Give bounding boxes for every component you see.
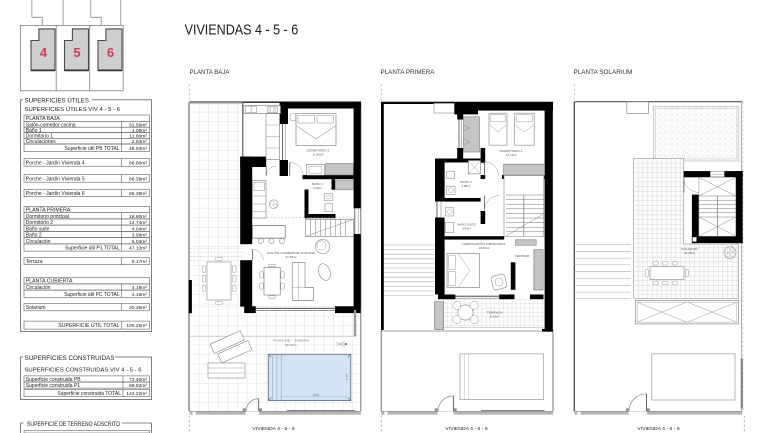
svg-text:14.74m²: 14.74m² bbox=[505, 153, 516, 157]
svg-text:SUPERFICIES CONSTRUIDAS: SUPERFICIES CONSTRUIDAS bbox=[25, 355, 115, 362]
svg-text:8.50: 8.50 bbox=[313, 393, 319, 397]
svg-text:VESTIDOR: VESTIDOR bbox=[515, 254, 529, 258]
svg-text:SUPERFICIE ÚTIL TOTAL: SUPERFICIE ÚTIL TOTAL bbox=[58, 322, 119, 329]
svg-text:11.80m²: 11.80m² bbox=[313, 153, 324, 157]
svg-text:PLANTA PRIMERA: PLANTA PRIMERA bbox=[381, 69, 436, 76]
svg-text:8.17m²: 8.17m² bbox=[490, 315, 499, 319]
svg-text:4.09m²: 4.09m² bbox=[313, 186, 322, 190]
svg-text:PLANTA BAJA: PLANTA BAJA bbox=[190, 69, 231, 76]
svg-text:Superficie útil PB TOTAL: Superficie útil PB TOTAL bbox=[64, 146, 119, 152]
svg-text:47.13m²: 47.13m² bbox=[129, 246, 147, 252]
svg-text:Porche - Jardín Vivienda 5: Porche - Jardín Vivienda 5 bbox=[26, 176, 85, 182]
svg-text:5: 5 bbox=[73, 45, 80, 60]
svg-text:18.60m²: 18.60m² bbox=[478, 246, 489, 250]
svg-text:86.39m²: 86.39m² bbox=[129, 176, 147, 182]
svg-text:69.82m²: 69.82m² bbox=[129, 383, 147, 389]
svg-text:PLANTA SOLARIUM: PLANTA SOLARIUM bbox=[574, 69, 633, 76]
svg-text:Superficie útil PC TOTAL: Superficie útil PC TOTAL bbox=[64, 292, 120, 298]
svg-text:SUPERFICIES CONSTRUIDAS VIV 4: SUPERFICIES CONSTRUIDAS VIV 4 - 5 - 6 bbox=[25, 367, 142, 373]
svg-text:86.39m²: 86.39m² bbox=[129, 191, 147, 197]
svg-text:SUPERFICIES ÚTILES VIV 4 - 5 -: SUPERFICIES ÚTILES VIV 4 - 5 - 6 bbox=[25, 106, 121, 113]
svg-text:30.25m²: 30.25m² bbox=[684, 251, 695, 255]
svg-text:143.22m²: 143.22m² bbox=[126, 391, 147, 397]
svg-text:Superficie construida P1: Superficie construida P1 bbox=[26, 383, 80, 389]
svg-text:Superficie construida TOTAL: Superficie construida TOTAL bbox=[57, 391, 121, 397]
svg-text:VIVIENDA 4 - 5 - 6: VIVIENDA 4 - 5 - 6 bbox=[445, 426, 488, 432]
svg-text:4.04m²: 4.04m² bbox=[462, 227, 471, 231]
svg-text:Porche - Jardín Vivienda 6: Porche - Jardín Vivienda 6 bbox=[26, 191, 85, 197]
svg-text:86.80m²: 86.80m² bbox=[129, 160, 147, 166]
svg-text:3.98m²: 3.98m² bbox=[462, 184, 471, 188]
svg-text:VIVIENDA 4 - 5 - 6: VIVIENDA 4 - 5 - 6 bbox=[252, 426, 295, 432]
svg-text:4.09m²: 4.09m² bbox=[132, 128, 148, 134]
svg-text:Terraza: Terraza bbox=[26, 259, 43, 265]
svg-text:31.56m²: 31.56m² bbox=[285, 255, 296, 259]
svg-text:SUPERFICIES ÚTILES: SUPERFICIES ÚTILES bbox=[25, 95, 90, 104]
svg-text:4: 4 bbox=[40, 45, 48, 60]
svg-text:Porche - Jardín Vivienda 4: Porche - Jardín Vivienda 4 bbox=[26, 160, 85, 166]
svg-text:Solarium: Solarium bbox=[26, 305, 46, 311]
svg-text:48.93m²: 48.93m² bbox=[129, 146, 147, 152]
svg-text:VIVIENDA 4 - 5 - 6: VIVIENDA 4 - 5 - 6 bbox=[637, 426, 680, 432]
svg-text:6: 6 bbox=[107, 45, 114, 60]
svg-text:4.19m²: 4.19m² bbox=[132, 292, 148, 298]
svg-text:30.25m²: 30.25m² bbox=[129, 305, 147, 311]
svg-text:8.17m²: 8.17m² bbox=[132, 259, 148, 265]
svg-text:SUPERFICIE DE TERRENO ADSCRITO: SUPERFICIE DE TERRENO ADSCRITO bbox=[27, 421, 120, 428]
svg-text:Superficie útil P1 TOTAL: Superficie útil P1 TOTAL bbox=[65, 246, 120, 252]
svg-text:VIVIENDAS 4 - 5 - 6: VIVIENDAS 4 - 5 - 6 bbox=[185, 22, 299, 39]
svg-text:2.75: 2.75 bbox=[345, 374, 349, 380]
svg-text:100.25m²: 100.25m² bbox=[126, 323, 147, 329]
svg-text:86.39m²: 86.39m² bbox=[285, 343, 296, 347]
